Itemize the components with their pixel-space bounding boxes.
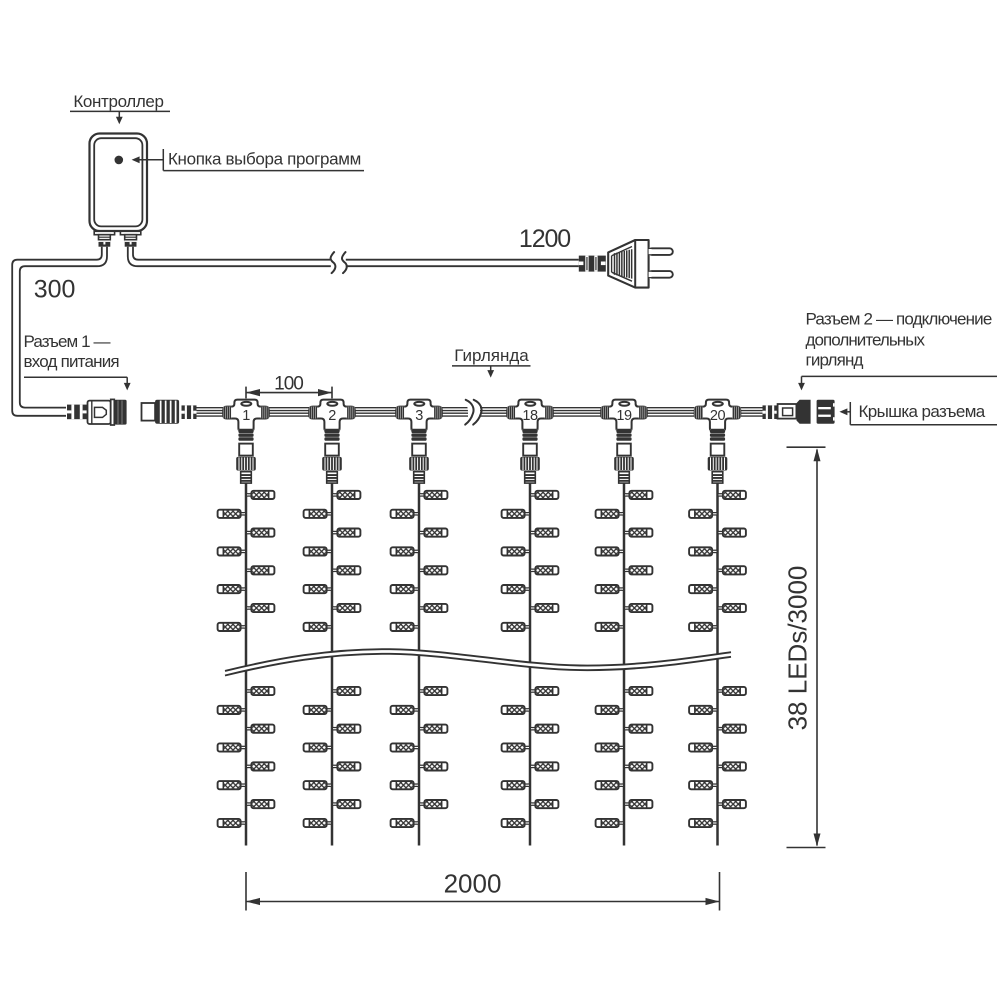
svg-text:20: 20 [710, 408, 726, 424]
svg-text:1200: 1200 [519, 225, 570, 253]
svg-text:38 LEDs/3000: 38 LEDs/3000 [783, 566, 813, 731]
svg-text:Гирлянда: Гирлянда [454, 346, 529, 365]
svg-text:Разъем 2 — подключение: Разъем 2 — подключение [806, 310, 992, 329]
svg-text:18: 18 [522, 408, 538, 424]
svg-text:вход питания: вход питания [24, 352, 120, 371]
svg-text:2000: 2000 [444, 869, 502, 899]
svg-text:Контроллер: Контроллер [73, 92, 163, 111]
svg-text:дополнительных: дополнительных [806, 330, 926, 349]
svg-text:300: 300 [34, 276, 76, 304]
svg-text:Разъем 1 —: Разъем 1 — [24, 332, 111, 351]
svg-text:19: 19 [616, 408, 632, 424]
svg-text:3: 3 [415, 408, 423, 424]
svg-text:1: 1 [242, 408, 250, 424]
svg-text:2: 2 [328, 408, 336, 424]
svg-text:Кнопка выбора программ: Кнопка выбора программ [168, 149, 361, 168]
svg-text:Крышка разъема: Крышка разъема [859, 402, 986, 421]
svg-text:100: 100 [274, 374, 303, 395]
svg-text:гирлянд: гирлянд [806, 350, 864, 369]
